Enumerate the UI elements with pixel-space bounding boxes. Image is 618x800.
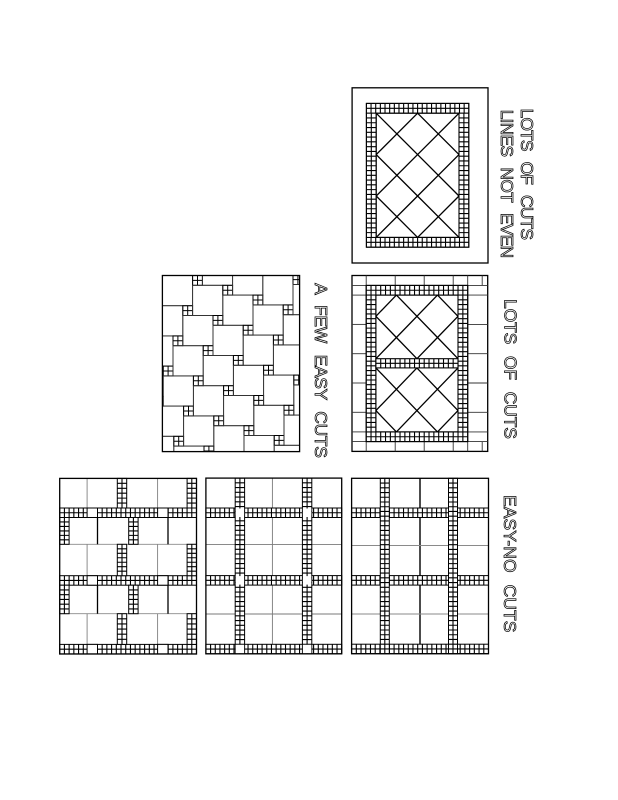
svg-text:LINES NOT EVEN: LINES NOT EVEN: [497, 110, 517, 259]
svg-text:LOTS OF CUTS: LOTS OF CUTS: [500, 299, 520, 439]
svg-text:A FEW EASY CUTS: A FEW EASY CUTS: [311, 283, 331, 458]
svg-text:EASY-NO CUTS: EASY-NO CUTS: [500, 495, 520, 633]
svg-text:LOTS OF CUTS: LOTS OF CUTS: [517, 109, 537, 241]
